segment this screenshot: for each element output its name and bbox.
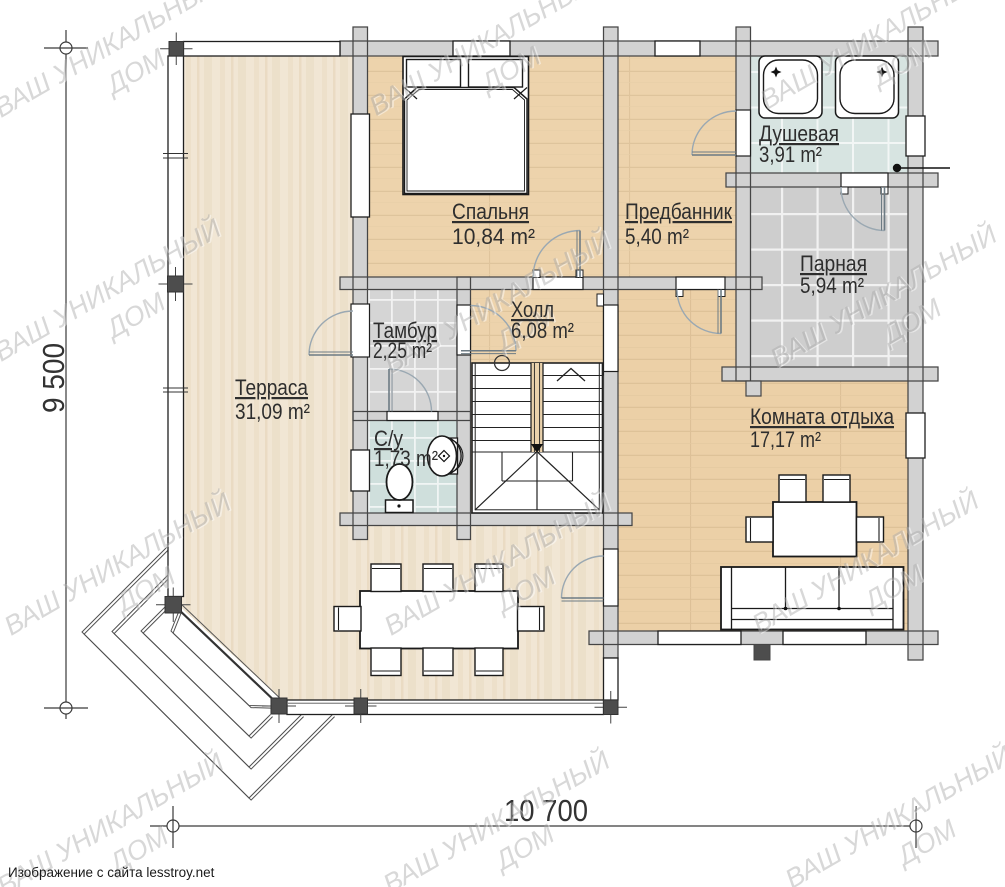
svg-text:Терраса: Терраса — [235, 375, 309, 400]
svg-text:9 500: 9 500 — [36, 343, 71, 413]
svg-text:Изображение с сайта lesstroy.n: Изображение с сайта lesstroy.net — [8, 865, 215, 880]
svg-text:17,17 m²: 17,17 m² — [750, 427, 821, 452]
svg-text:5,94 m²: 5,94 m² — [800, 273, 864, 298]
svg-text:2,25 m²: 2,25 m² — [373, 338, 432, 363]
svg-text:31,09 m²: 31,09 m² — [235, 399, 310, 424]
svg-text:Предбанник: Предбанник — [625, 199, 732, 224]
svg-text:1,73 m²: 1,73 m² — [374, 446, 438, 471]
svg-text:Спальня: Спальня — [452, 199, 529, 224]
svg-text:3,91 m²: 3,91 m² — [759, 142, 822, 167]
svg-text:6,08 m²: 6,08 m² — [511, 318, 574, 343]
svg-text:10,84 m²: 10,84 m² — [452, 224, 535, 249]
svg-text:Комната отдыха: Комната отдыха — [750, 404, 895, 429]
svg-text:5,40 m²: 5,40 m² — [625, 224, 689, 249]
